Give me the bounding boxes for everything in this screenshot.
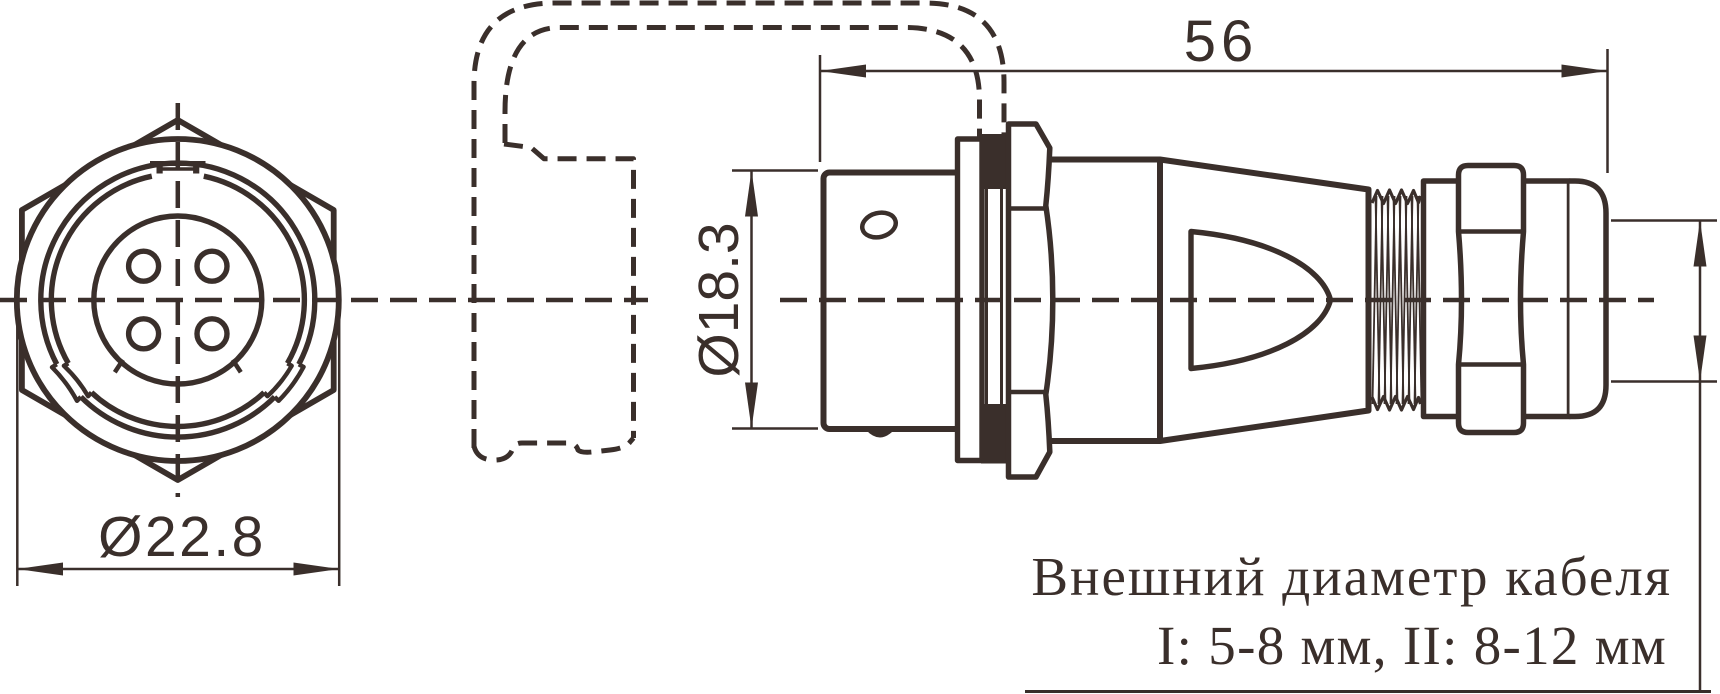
svg-text:56: 56	[1184, 9, 1259, 74]
svg-text:Внешний диаметр кабеля: Внешний диаметр кабеля	[1031, 546, 1672, 607]
svg-text:I: 5-8 мм, II: 8-12 мм: I: 5-8 мм, II: 8-12 мм	[1157, 615, 1667, 676]
svg-text:Ø22.8: Ø22.8	[98, 505, 266, 569]
svg-text:Ø18.3: Ø18.3	[687, 222, 751, 377]
